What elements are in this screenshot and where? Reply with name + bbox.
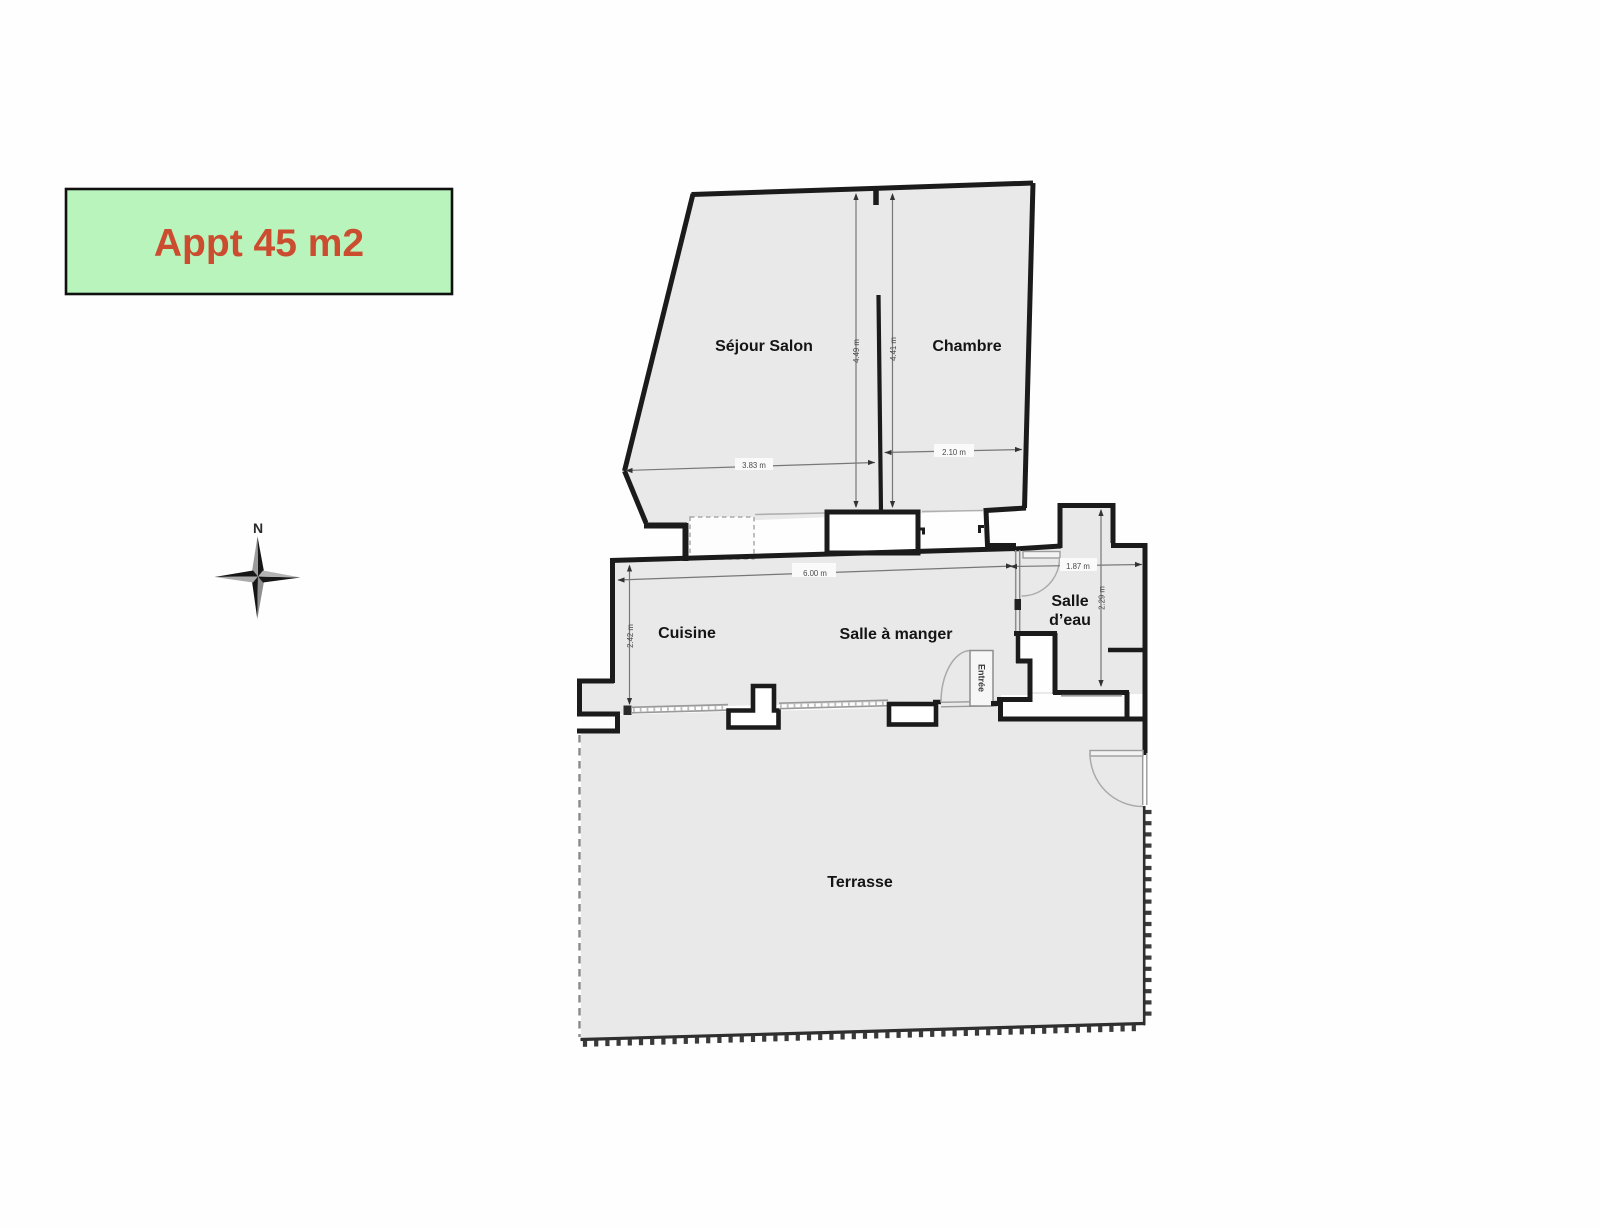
svg-text:d’eau: d’eau [1049,612,1091,629]
svg-text:4.49 m: 4.49 m [852,339,861,363]
svg-text:4.41 m: 4.41 m [889,337,898,361]
svg-text:2.29 m: 2.29 m [1098,586,1107,610]
svg-text:Appt 45 m2: Appt 45 m2 [154,222,364,265]
svg-text:Salle à manger: Salle à manger [840,626,953,643]
svg-text:Entrée: Entrée [977,664,987,692]
svg-text:2.10 m: 2.10 m [942,448,966,457]
svg-text:Cuisine: Cuisine [658,625,716,642]
svg-text:N: N [253,520,263,536]
svg-text:Chambre: Chambre [932,338,1001,355]
svg-text:Terrasse: Terrasse [827,874,893,891]
svg-text:3.83 m: 3.83 m [742,461,766,470]
svg-text:6.00 m: 6.00 m [803,569,827,578]
svg-text:2.42 m: 2.42 m [626,624,635,648]
svg-text:Salle: Salle [1051,593,1088,610]
svg-text:Séjour Salon: Séjour Salon [715,338,813,355]
svg-text:1.87 m: 1.87 m [1066,562,1090,571]
